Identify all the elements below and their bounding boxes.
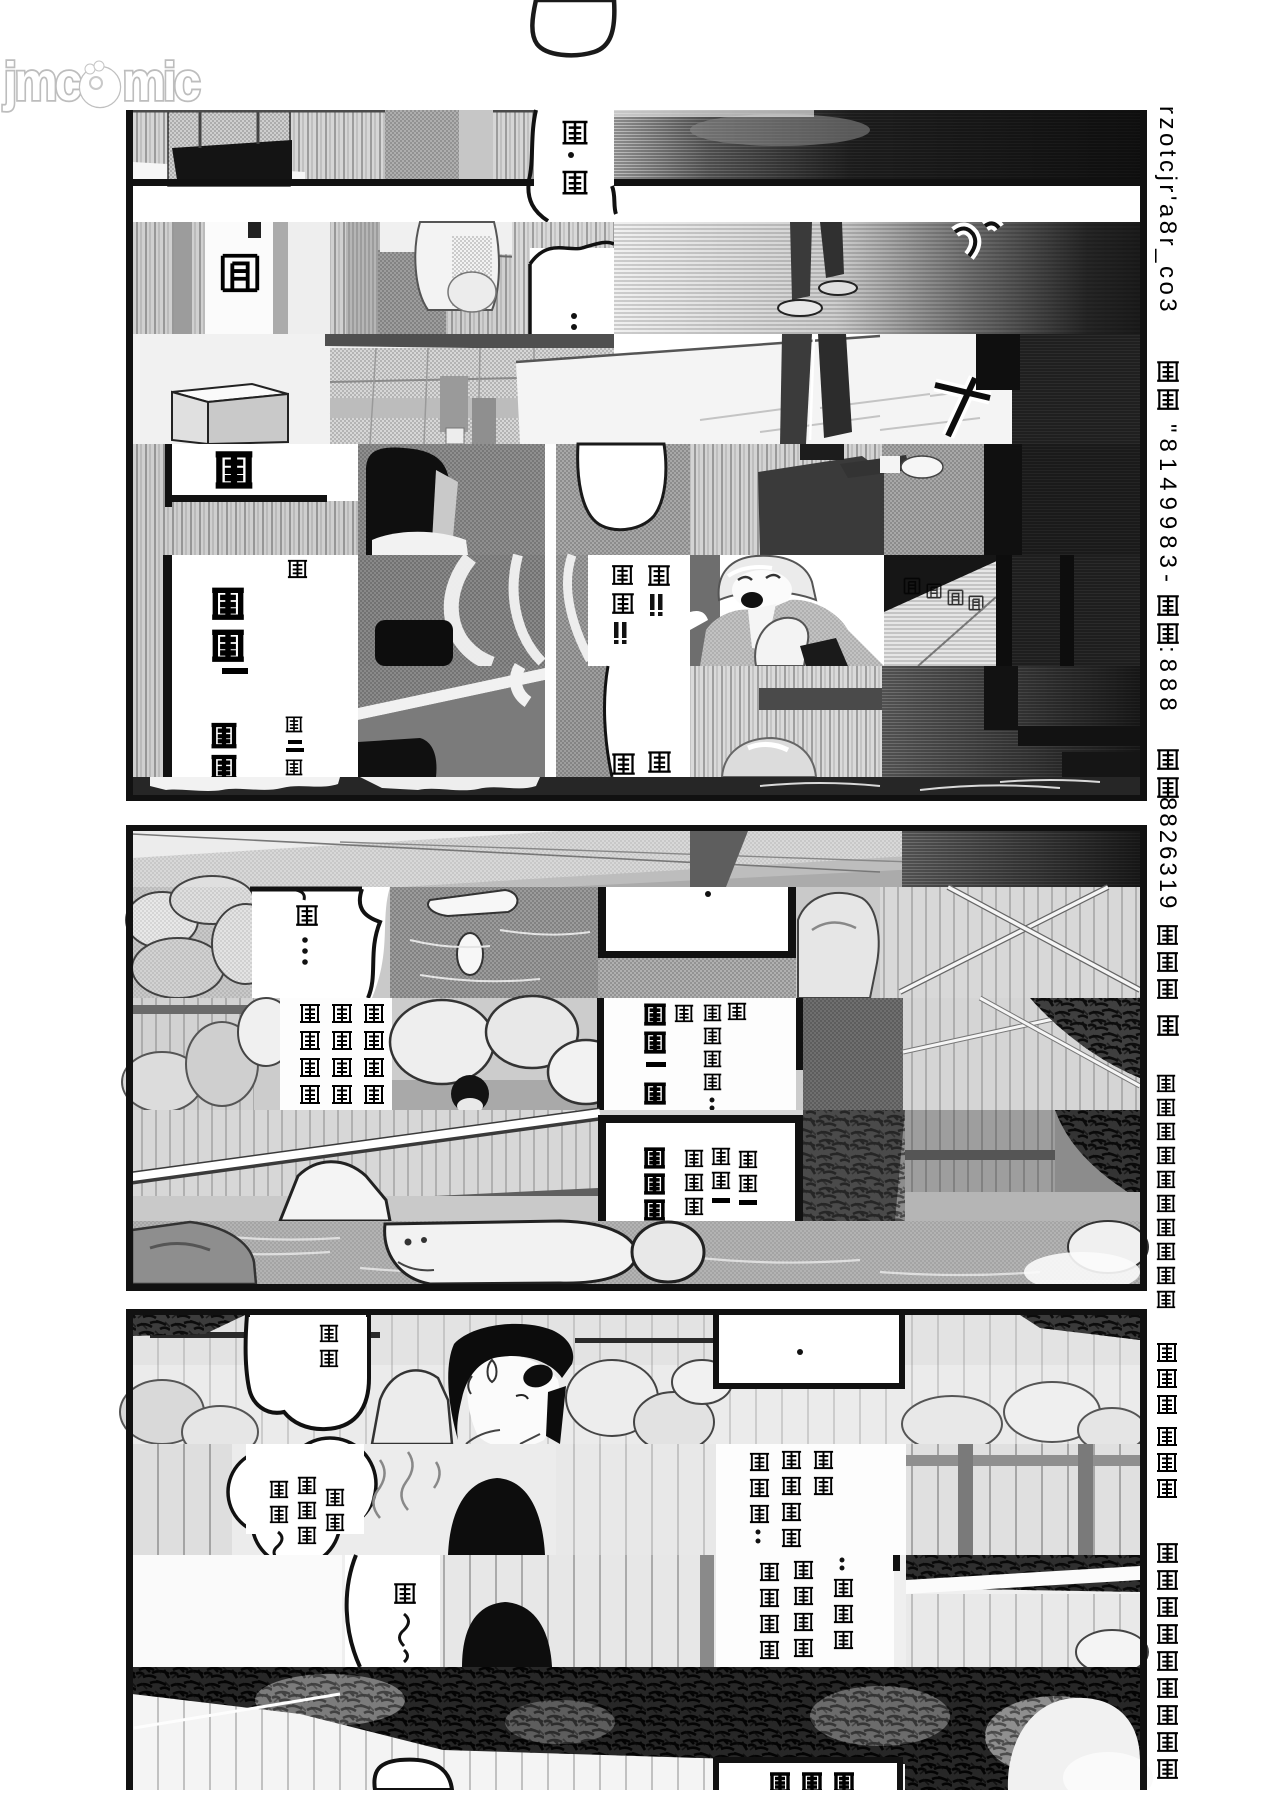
svg-text:rzotcjr'a8r_co3: rzotcjr'a8r_co3 — [1154, 106, 1181, 315]
svg-text::888: :888 — [1154, 646, 1181, 717]
svg-text:jmc: jmc — [3, 51, 82, 112]
svg-text:8826319: 8826319 — [1154, 797, 1181, 911]
svg-text:mic: mic — [122, 51, 200, 112]
svg-text:"8149983-: "8149983- — [1154, 424, 1181, 588]
